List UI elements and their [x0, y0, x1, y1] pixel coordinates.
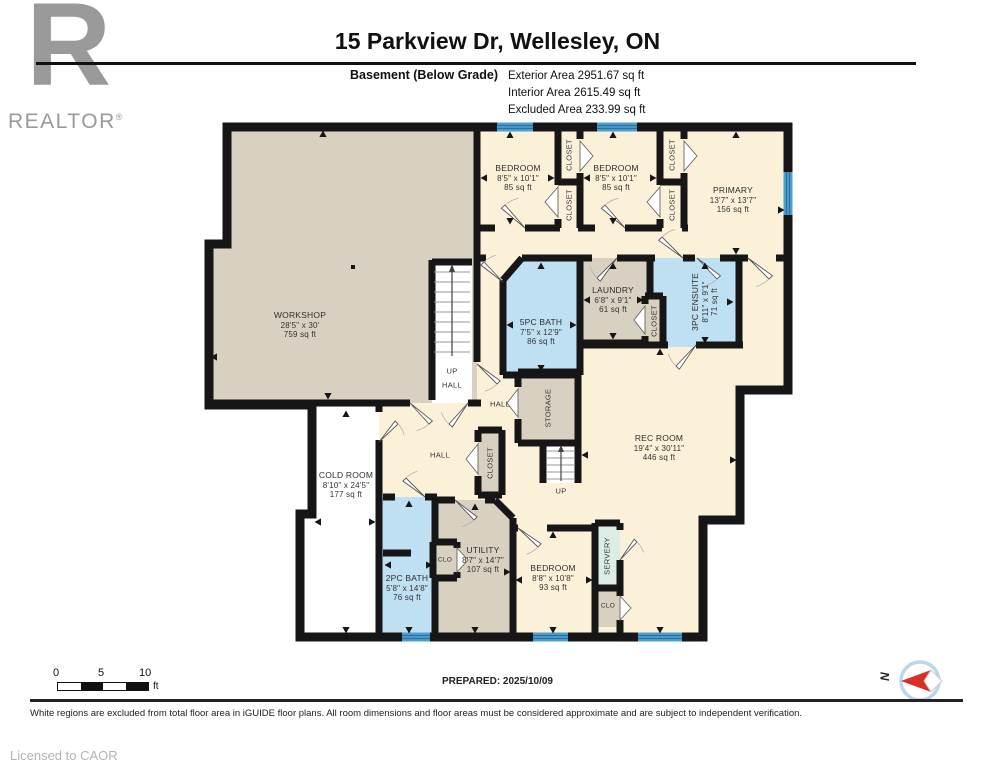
- room-label-bedroom-2: BEDROOM8'5" x 10'1"85 sq ft: [593, 164, 638, 193]
- hall-label: HALL: [490, 400, 510, 409]
- room-label-3pc-ensuite: 3PC ENSUITE8'11" x 9'1"71 sq ft: [691, 273, 720, 331]
- room-label-workshop: WORKSHOP28'5" x 30'759 sq ft: [274, 311, 326, 340]
- fixture-marker: [351, 265, 355, 269]
- footer-divider: [30, 699, 963, 702]
- room-label-utility: UTILITY8'7" x 14'7"107 sq ft: [462, 546, 504, 575]
- room-label-laundry: LAUNDRY6'8" x 9'1"61 sq ft: [592, 286, 634, 315]
- room-label-5pc-bath: 5PC BATH7'5" x 12'9"86 sq ft: [520, 318, 563, 347]
- closet-label: CLOSET: [565, 139, 574, 171]
- hall-label: HALL: [430, 451, 450, 460]
- registered-mark: ®: [116, 112, 124, 122]
- exterior-area: Exterior Area 2951.67 sq ft: [508, 68, 645, 85]
- floor-plan: WORKSHOP28'5" x 30'759 sq ft BEDROOM8'5"…: [200, 110, 800, 650]
- floor-label: Basement (Below Grade): [240, 68, 498, 82]
- room-label-cold-room: COLD ROOM8'10" x 24'5"177 sq ft: [319, 471, 373, 500]
- stairs-up-label: UP: [446, 367, 457, 376]
- servery-label: SERVERY: [603, 537, 612, 575]
- page-title: 15 Parkview Dr, Wellesley, ON: [0, 28, 995, 55]
- floor-plan-page: R REALTOR® 15 Parkview Dr, Wellesley, ON…: [0, 0, 995, 768]
- stairs-up-label: UP: [555, 487, 566, 496]
- closet-label: CLOSET: [668, 189, 677, 221]
- closet-label: CLOSET: [668, 139, 677, 171]
- closet-label: CLOSET: [650, 305, 659, 337]
- clo-label: CLO: [601, 603, 615, 610]
- room-label-rec-room: REC ROOM19'4" x 30'11"446 sq ft: [634, 434, 685, 463]
- room-label-bedroom-3: BEDROOM8'8" x 10'8"93 sq ft: [530, 564, 575, 593]
- clo-label: CLO: [438, 557, 452, 564]
- room-label-2pc-bath: 2PC BATH5'8" x 14'8"76 sq ft: [386, 574, 429, 603]
- compass-north-label: N: [878, 672, 892, 681]
- header-divider: [36, 62, 916, 65]
- compass-icon: N: [868, 655, 968, 715]
- stairs-hall-label: HALL: [442, 381, 462, 390]
- license-text: Licensed to CAOR: [10, 748, 118, 763]
- closet-label: CLOSET: [565, 189, 574, 221]
- room-label-bedroom-1: BEDROOM8'5" x 10'1"85 sq ft: [495, 164, 540, 193]
- storage-label: STORAGE: [544, 389, 553, 428]
- prepared-date: PREPARED: 2025/10/09: [0, 676, 995, 687]
- closet-label: CLOSET: [486, 447, 495, 479]
- interior-area: Interior Area 2615.49 sq ft: [508, 85, 645, 102]
- disclaimer-text: White regions are excluded from total fl…: [30, 708, 970, 719]
- room-label-primary: PRIMARY13'7" x 13'7"156 sq ft: [710, 186, 756, 215]
- realtor-logo-label: REALTOR®: [8, 110, 124, 134]
- realtor-logo-word: REALTOR: [8, 110, 116, 133]
